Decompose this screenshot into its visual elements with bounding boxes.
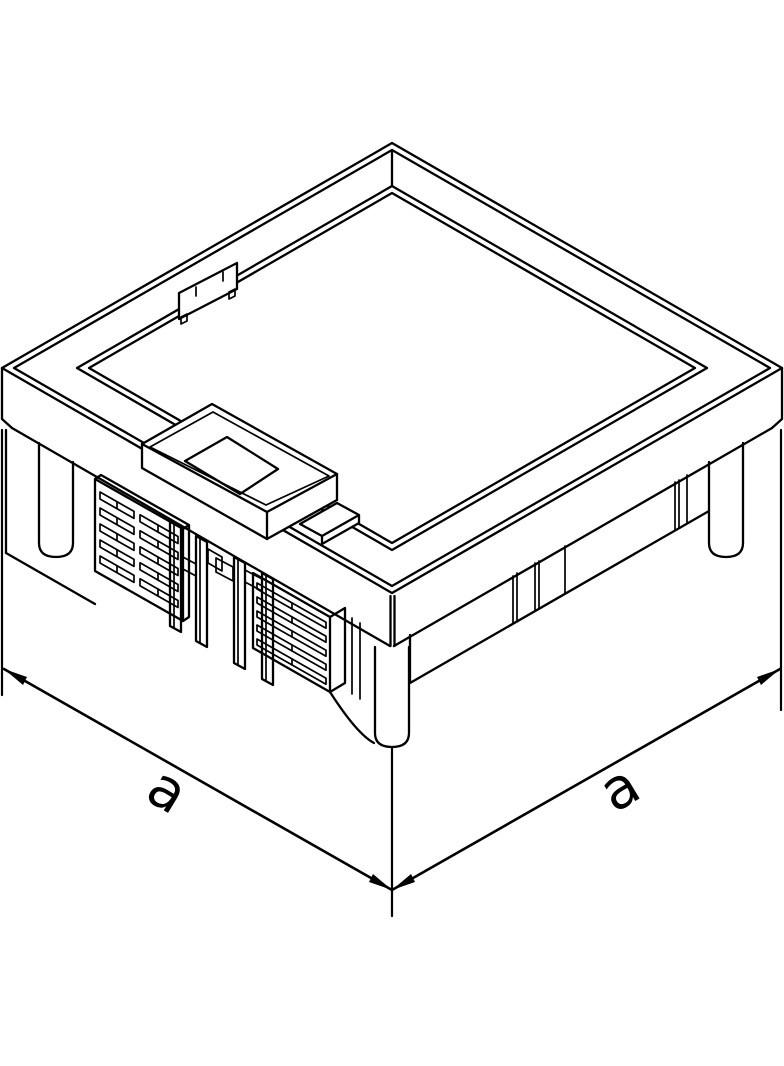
body-bottom-left-edge — [6, 553, 95, 604]
arrowhead-right-inner — [392, 874, 415, 890]
dimension-label-left: a — [136, 754, 199, 827]
frame-outer-edge-inner-line — [14, 150, 770, 586]
body-bottom-curve — [330, 692, 374, 743]
frame-corner-edges — [2, 152, 782, 646]
louver-panel-left — [95, 475, 189, 621]
front-corner-ribs — [352, 618, 360, 699]
lid-frame — [2, 143, 782, 646]
louver-slots-left — [100, 492, 178, 608]
mounting-tab — [179, 263, 237, 324]
dimension-label-right: a — [588, 752, 651, 825]
louver-tabs-left — [117, 502, 158, 596]
isometric-floor-box-drawing: a a — [0, 0, 784, 1066]
dimension-line-right — [392, 669, 780, 890]
drawing-canvas: a a — [0, 0, 784, 1066]
right-face-ribs — [513, 475, 687, 623]
front-leg — [375, 647, 409, 747]
frame-inner-rim-edge — [77, 186, 707, 550]
dimension-line-left — [4, 669, 392, 890]
arrowhead-right-outer — [757, 669, 780, 685]
frame-skirt-bottom-edges — [12, 428, 772, 646]
arrowhead-left-inner — [369, 874, 392, 890]
arrowhead-left-outer — [4, 669, 27, 685]
